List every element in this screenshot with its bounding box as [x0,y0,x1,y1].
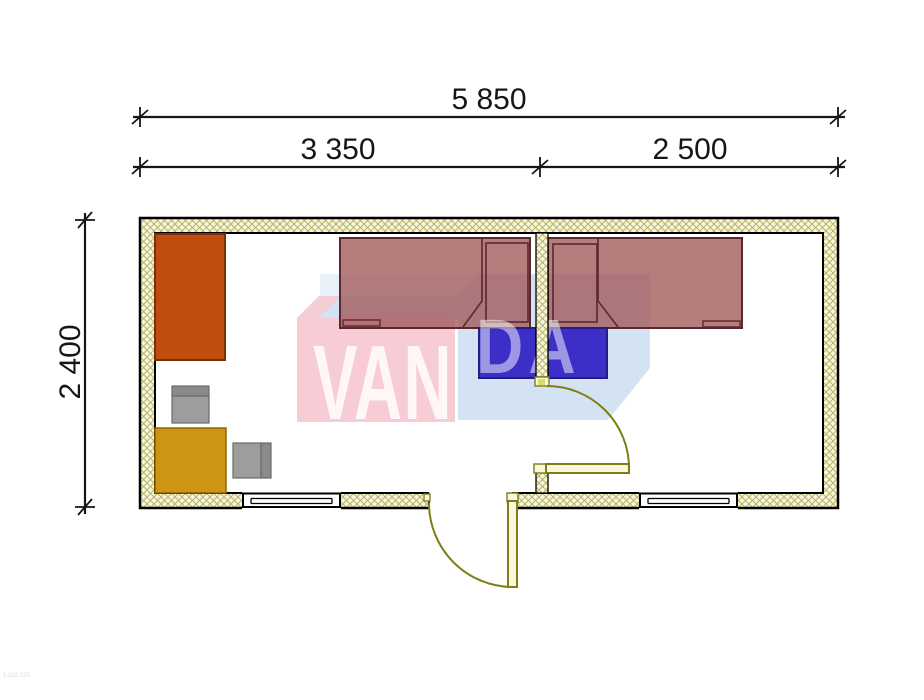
floor-plan-page: 5 850 3 350 2 500 2 400 [0,0,924,700]
chair-backrest [172,386,209,396]
drawing-code: 1.102.123 [3,673,30,679]
interior-door-leaf [546,464,629,473]
dim-label-overall-width: 5 850 [451,83,526,116]
table [155,428,226,493]
exterior-door [424,491,518,588]
door-strike-cap [424,494,430,501]
floor-plan-drawing: 5 850 3 350 2 500 2 400 [0,0,924,700]
dim-label-overall-depth: 2 400 [54,324,87,399]
desk-chair-bottom [233,443,271,478]
door-strike-dot [538,379,545,385]
desk-chair-top [172,386,209,423]
dim-label-room-right-width: 2 500 [652,133,727,166]
chair-seat [233,443,261,478]
chair-seat [172,396,209,423]
openings [242,491,738,588]
window-left [242,491,341,510]
partition-wall [536,233,548,377]
exterior-door-swing-arc [429,503,513,587]
door-opening [429,491,512,510]
exterior-door-leaf [508,501,517,587]
window-right [639,491,738,510]
watermark-text-van: VAN [313,323,453,441]
watermark-text-da: DA [476,304,581,390]
wardrobe [155,234,225,360]
chair-backrest [261,443,271,478]
window-frame [640,494,737,508]
window-frame [243,494,340,508]
partition-stub [536,472,548,493]
dim-label-room-left-width: 3 350 [300,133,375,166]
